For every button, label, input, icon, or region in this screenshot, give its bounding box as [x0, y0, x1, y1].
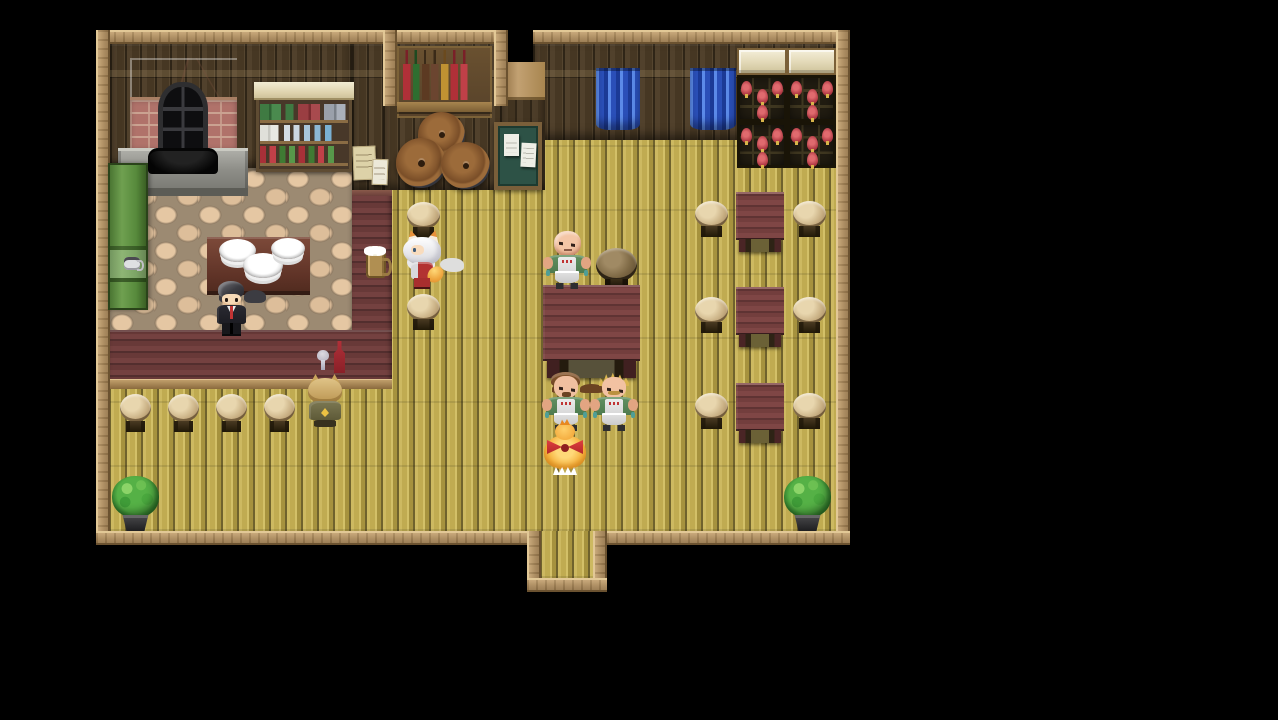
wine-rack-4-rb — [791, 128, 802, 143]
alcove-frame-right — [494, 30, 508, 106]
liquor-shelf — [397, 46, 492, 118]
wine-bottle-and-glass-p-glass — [316, 350, 330, 374]
bald-patron-p-face — [554, 231, 581, 256]
barrel-stack-bfc — [396, 138, 446, 188]
fireplace — [130, 58, 237, 150]
fox-eared-waitress[interactable] — [402, 230, 444, 288]
stool-t1-left — [695, 201, 728, 237]
bird-companion-p-knot — [561, 444, 569, 452]
dining-table-2 — [736, 287, 784, 347]
bar-stool-3 — [216, 394, 247, 432]
wine-rack-1-rb — [772, 81, 783, 96]
liquor-shelf-bbodies — [403, 64, 486, 100]
bar-stool-2 — [168, 394, 199, 432]
wine-bottle-and-glass — [316, 341, 346, 374]
exit-doorway[interactable] — [541, 531, 593, 578]
frame-bottom-left — [96, 531, 527, 545]
cup-on-cabinet — [124, 257, 140, 270]
wine-rack-2-rb — [807, 105, 818, 120]
wine-rack-2 — [787, 75, 836, 122]
stool-t1-right — [793, 201, 826, 237]
frame-top-right — [533, 30, 850, 44]
bartender-p-body — [217, 305, 246, 324]
wine-rack-1-rb — [757, 89, 768, 104]
bald-patron-p-apron — [555, 271, 579, 283]
dish-shelf-mrow — [260, 146, 348, 166]
brown-haired-patron-p-face — [554, 376, 578, 398]
frame-top-left — [96, 30, 390, 44]
fox-eared-waitress-p-face — [411, 245, 424, 255]
wine-rack-3-rb — [772, 128, 783, 143]
dining-table-1 — [736, 192, 784, 252]
wine-rack-4-rb — [807, 136, 818, 151]
wine-rack-2-rb — [807, 89, 818, 104]
fireplace-fp-arch — [158, 82, 208, 150]
seated-bar-patron-p-body — [309, 401, 341, 420]
blonde-patron-p-apron — [602, 413, 626, 425]
notice-board-np — [520, 143, 536, 168]
wine-bottle-and-glass-p-bottle — [334, 341, 345, 373]
wall-papers — [353, 146, 391, 190]
bird-companion[interactable] — [543, 423, 587, 475]
seated-bar-patron-p-hair — [308, 378, 342, 403]
fox-eared-waitress-p-legs — [414, 278, 430, 287]
notice-board-np — [504, 134, 519, 156]
small-round-table — [596, 248, 637, 289]
wine-rack-4-rb — [807, 152, 818, 167]
dish-shelf — [256, 82, 352, 172]
door-frame-bottom — [527, 578, 607, 592]
frame-right — [836, 30, 850, 545]
stool-t3-right — [793, 393, 826, 429]
wine-rack-3-rb — [757, 136, 768, 151]
alcove-frame-left — [383, 30, 397, 106]
notice-board[interactable] — [494, 122, 542, 190]
cabinet-top-2 — [787, 48, 836, 75]
kitchen-table-ps — [271, 238, 305, 259]
brown-haired-patron[interactable] — [544, 372, 588, 429]
bar-stool-1 — [120, 394, 151, 432]
bald-patron-p-legs — [556, 283, 578, 289]
wine-rack-2-rb — [822, 81, 833, 96]
alcove-frame-top — [383, 30, 508, 44]
wine-rack-4-rb — [822, 128, 833, 143]
wine-rack-4 — [787, 122, 836, 168]
bar-counter-horizontal — [110, 330, 392, 389]
beer-mug — [366, 251, 386, 278]
liquor-shelf-bboard — [397, 102, 492, 112]
fireplace-opening — [148, 148, 218, 174]
stool-t3-left — [695, 393, 728, 429]
curtain-left — [596, 68, 640, 130]
bald-patron[interactable] — [545, 230, 590, 289]
cabinet-top-1 — [737, 48, 787, 75]
frame-bottom-right — [607, 531, 850, 545]
stool-lower — [407, 294, 440, 330]
dish-shelf-mrow — [260, 104, 348, 123]
potted-plant-right — [784, 476, 831, 531]
barrel-stack-bfc — [441, 142, 490, 189]
bar-stool-4 — [264, 394, 295, 432]
wall-papers-wp — [372, 159, 389, 186]
dish-shelf-mrow — [260, 125, 348, 144]
game-viewport — [0, 0, 1278, 720]
bird-companion-p-head — [555, 423, 575, 440]
curtain-right — [690, 68, 736, 130]
stool-t2-right — [793, 297, 826, 333]
dish-shelf-mtop — [254, 82, 354, 100]
blonde-patron-p-legs — [603, 425, 625, 431]
wine-rack-3-rb — [741, 128, 752, 143]
green-cabinet — [108, 163, 148, 310]
barrel-stack — [396, 112, 492, 190]
wine-rack-1 — [737, 75, 787, 122]
wine-rack-3-rb — [757, 152, 768, 167]
blonde-patron[interactable] — [592, 372, 636, 429]
seated-bar-patron[interactable] — [305, 374, 345, 428]
stool-t2-left — [695, 297, 728, 333]
potted-plant-left — [112, 476, 159, 531]
wine-rack-3 — [737, 122, 787, 168]
wine-rack-1-rb — [757, 105, 768, 120]
seated-bar-patron-p-legs — [314, 420, 336, 427]
bartender[interactable] — [215, 281, 248, 334]
center-table — [543, 285, 640, 378]
tavern-map — [0, 0, 1278, 720]
wine-rack-2-rb — [791, 81, 802, 96]
dining-table-3 — [736, 383, 784, 443]
bartender-p-legs — [222, 323, 241, 334]
wine-rack-1-rb — [741, 81, 752, 96]
blonde-patron-p-face — [602, 377, 626, 398]
